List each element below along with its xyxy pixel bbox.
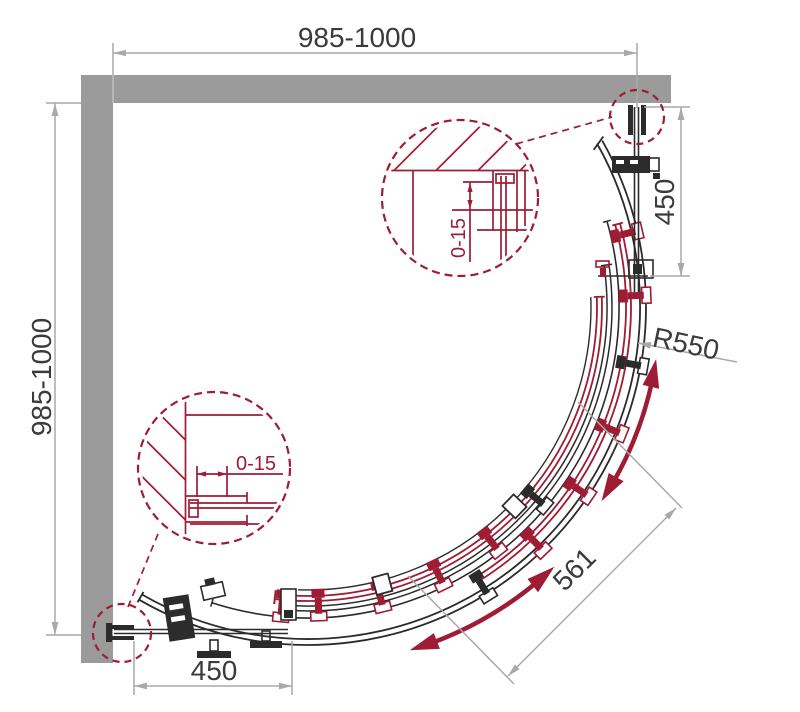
detail-view-top: 0-15 xyxy=(352,90,664,276)
wall-hatch xyxy=(118,452,186,520)
wall-hatch xyxy=(118,489,186,557)
arrowhead xyxy=(678,263,685,276)
roller-red xyxy=(310,589,327,622)
wall-profile-clamp xyxy=(106,623,112,642)
radius-leader: R550 xyxy=(638,322,737,366)
arrowhead xyxy=(52,622,59,635)
dim-label-radius: R550 xyxy=(650,322,722,366)
arrowhead xyxy=(218,471,227,476)
arrowhead xyxy=(197,471,206,476)
wall-hatch xyxy=(352,101,422,171)
technical-drawing-page: 985-1000 985-1000 450 450 561 xyxy=(0,0,800,712)
arrowhead xyxy=(134,683,147,690)
dim-right-panel: 450 xyxy=(644,107,690,276)
wall-hatch xyxy=(520,101,590,171)
arrowhead xyxy=(624,50,637,56)
wall-profile-bar xyxy=(110,636,134,640)
track-bracket xyxy=(612,156,650,173)
roller-stem xyxy=(628,292,644,300)
roller-pad-inner xyxy=(619,289,628,302)
arrowhead xyxy=(279,683,292,690)
door-2-end-cap xyxy=(274,590,276,604)
dim-label-door-width: 561 xyxy=(547,542,602,597)
handle-box xyxy=(372,573,392,595)
arrowhead xyxy=(467,183,472,192)
shower-enclosure-plan: 985-1000 985-1000 450 450 561 xyxy=(0,0,800,712)
wall-hatch xyxy=(436,101,506,171)
wall-profile-bar xyxy=(641,105,646,135)
track-arc-mid xyxy=(212,221,619,618)
wall-hatch xyxy=(118,412,186,480)
wall-hatch xyxy=(394,101,464,171)
panel-foot-bracket xyxy=(633,264,642,274)
detail-bottom-label: 0-15 xyxy=(236,453,276,475)
detail-leader-dashed xyxy=(516,117,612,144)
wall-top xyxy=(81,75,671,103)
door-motion-arrows xyxy=(410,359,659,650)
dim-bottom-panel: 450 xyxy=(134,641,292,695)
detail-top-label: 0-15 xyxy=(448,218,470,258)
wall-hatch xyxy=(118,332,186,400)
roller-stem xyxy=(315,598,323,614)
roller-stem xyxy=(432,567,445,584)
arrowhead xyxy=(678,107,685,120)
dim-label-left: 985-1000 xyxy=(26,318,57,436)
floor-bracket-base xyxy=(250,641,282,648)
roller-stem xyxy=(571,483,588,498)
arrowhead xyxy=(467,200,472,209)
motion-arrowhead xyxy=(602,473,624,501)
detail-view-bottom: 0-15 xyxy=(93,332,290,662)
roller-pad-inner xyxy=(311,589,324,598)
detail-top-content xyxy=(352,101,590,264)
motion-arrowhead xyxy=(410,633,440,650)
arrowhead xyxy=(52,103,59,116)
wall-hatch xyxy=(478,101,548,171)
bracket-slot xyxy=(616,160,624,164)
profile-block xyxy=(496,174,514,183)
arrowhead xyxy=(638,342,651,349)
floor-bracket-stem xyxy=(210,640,218,651)
rail-end-cap xyxy=(601,264,612,266)
wall-profile-bar xyxy=(628,105,633,135)
rail-end-cap xyxy=(603,220,611,222)
bracket-lug xyxy=(653,173,660,179)
extension-line xyxy=(408,576,514,684)
wall-profile-bar xyxy=(110,625,134,629)
door-stop-red xyxy=(600,268,606,277)
dim-label-top: 985-1000 xyxy=(298,22,416,53)
wall-left xyxy=(81,75,113,663)
bracket-slot xyxy=(630,160,638,164)
door-handle xyxy=(372,573,392,595)
bracket-lug xyxy=(649,158,659,171)
dim-label-right-panel: 450 xyxy=(649,179,680,226)
wall-hatch xyxy=(118,372,186,440)
dim-label-bottom-panel: 450 xyxy=(191,655,238,686)
arrowhead xyxy=(113,50,126,56)
dim-left-wall: 985-1000 xyxy=(26,103,81,635)
panel-end-post xyxy=(284,610,293,618)
